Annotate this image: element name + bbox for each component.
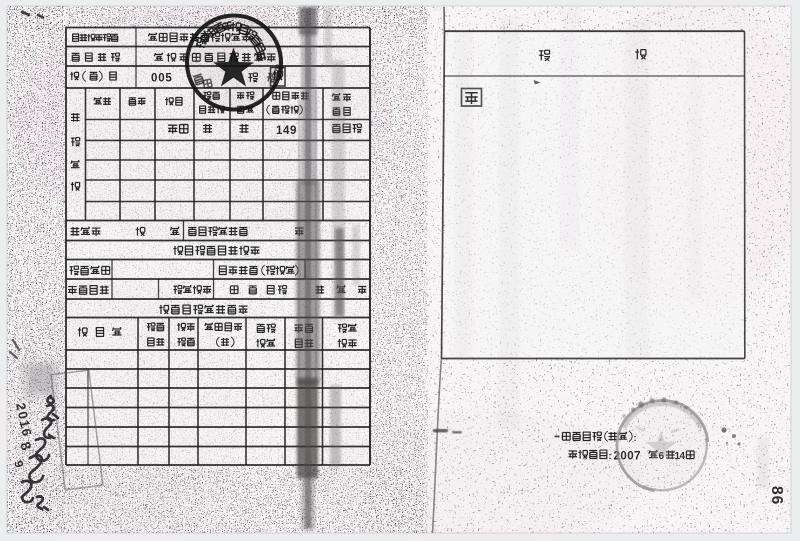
svg-text:149: 149 <box>276 125 297 137</box>
svg-text:86: 86 <box>768 486 785 505</box>
svg-text:005: 005 <box>151 73 173 85</box>
svg-text::: : <box>609 451 612 462</box>
